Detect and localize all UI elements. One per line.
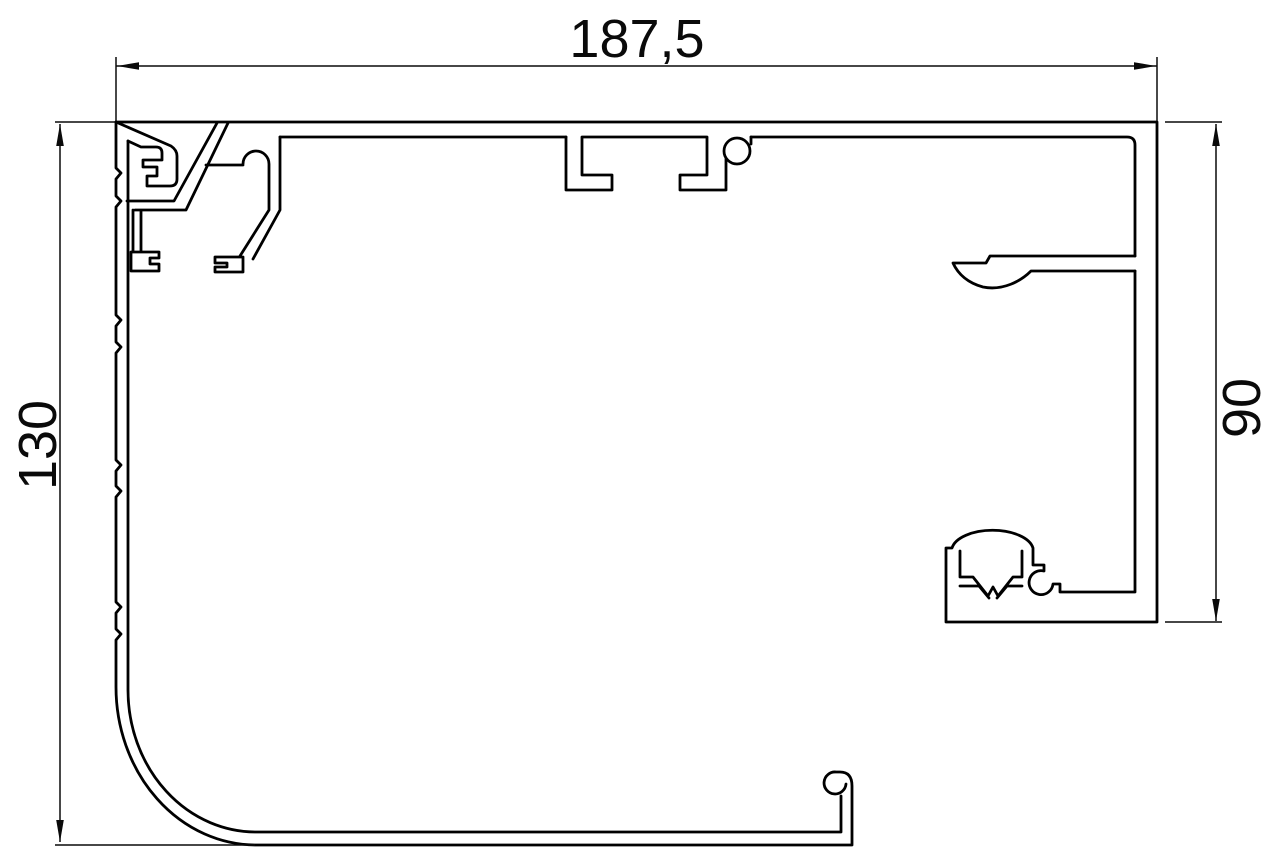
- dimension-arrowhead: [1212, 599, 1220, 621]
- dim-width-label: 187,5: [569, 9, 704, 69]
- profile-path: [680, 137, 751, 190]
- profile-path: [127, 123, 228, 271]
- profile-path: [116, 122, 852, 845]
- dimension-arrowhead: [56, 820, 64, 842]
- profile-path: [206, 137, 280, 272]
- profile-path: [128, 141, 841, 832]
- profile-path: [116, 122, 1157, 622]
- dim-right-height-label: 90: [1212, 378, 1272, 438]
- dimension-arrowhead: [56, 124, 64, 146]
- profile-path: [751, 137, 1135, 256]
- dim-height-label: 130: [8, 400, 68, 490]
- profile-path: [116, 122, 177, 186]
- dimension-arrowhead: [117, 62, 139, 70]
- dimension-arrowhead: [1134, 62, 1156, 70]
- technical-drawing: 187,5 130 90: [0, 0, 1280, 866]
- drawing-page: 187,5 130 90: [0, 0, 1280, 866]
- dimension-lines: [55, 57, 1222, 845]
- profile-path: [566, 137, 612, 190]
- profile-outline: [116, 122, 1157, 845]
- dimension-arrowhead: [1212, 124, 1220, 146]
- dimension-arrowheads: [56, 62, 1220, 842]
- profile-path: [953, 256, 1135, 288]
- profile-path: [960, 551, 1022, 598]
